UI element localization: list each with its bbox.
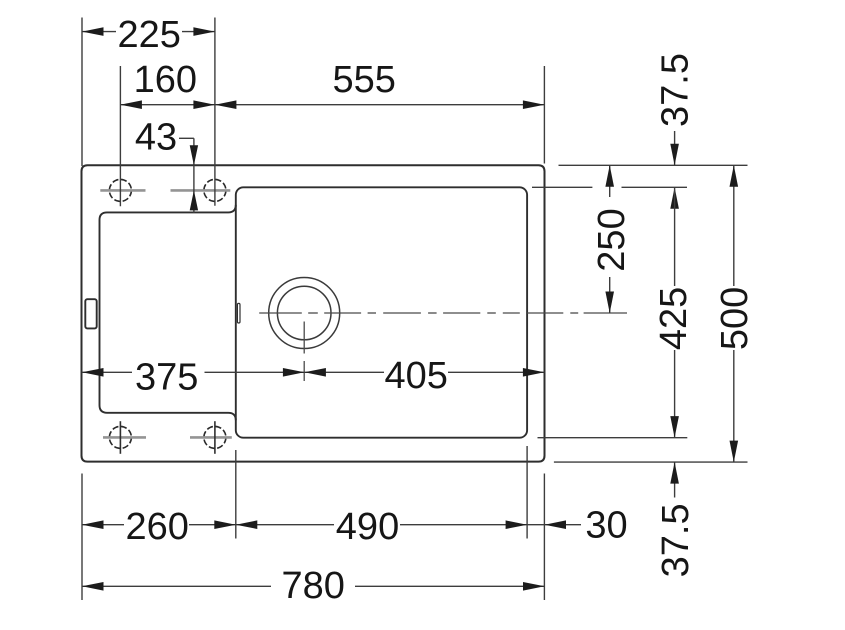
svg-text:500: 500 [714,287,756,350]
svg-text:260: 260 [125,506,188,548]
svg-text:37.5: 37.5 [655,503,697,577]
svg-text:160: 160 [134,59,197,101]
svg-text:425: 425 [653,287,695,350]
svg-text:555: 555 [332,59,395,101]
svg-text:405: 405 [384,355,447,397]
svg-text:250: 250 [591,208,633,271]
svg-text:30: 30 [585,505,627,547]
svg-text:780: 780 [281,565,344,607]
svg-text:490: 490 [336,506,399,548]
svg-text:43: 43 [135,117,177,159]
svg-text:225: 225 [117,14,180,56]
svg-text:37.5: 37.5 [655,53,697,127]
svg-text:375: 375 [135,356,198,398]
